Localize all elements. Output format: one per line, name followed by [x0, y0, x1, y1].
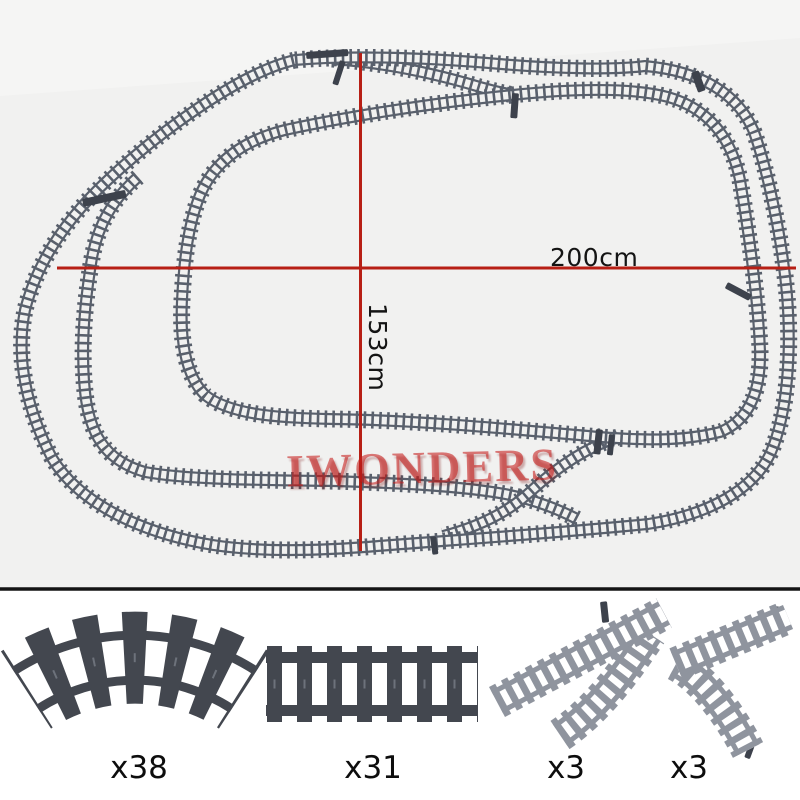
- straight-track-count: x31: [333, 750, 413, 786]
- product-image: 200cm 153cm IWONDERS x38 x31 x3 x3: [0, 0, 800, 800]
- switch-track-right-count: x3: [663, 750, 715, 786]
- watermark-text: IWONDERS: [281, 437, 562, 497]
- track-layout-canvas: [0, 0, 800, 800]
- width-dimension-label: 200cm: [550, 243, 638, 272]
- height-dimension-label: 153cm: [363, 303, 392, 391]
- switch-track-left-count: x3: [540, 750, 592, 786]
- curved-track-piece: [26, 658, 244, 690]
- layout-area-background: [0, 0, 800, 588]
- curved-track-count: x38: [99, 750, 179, 786]
